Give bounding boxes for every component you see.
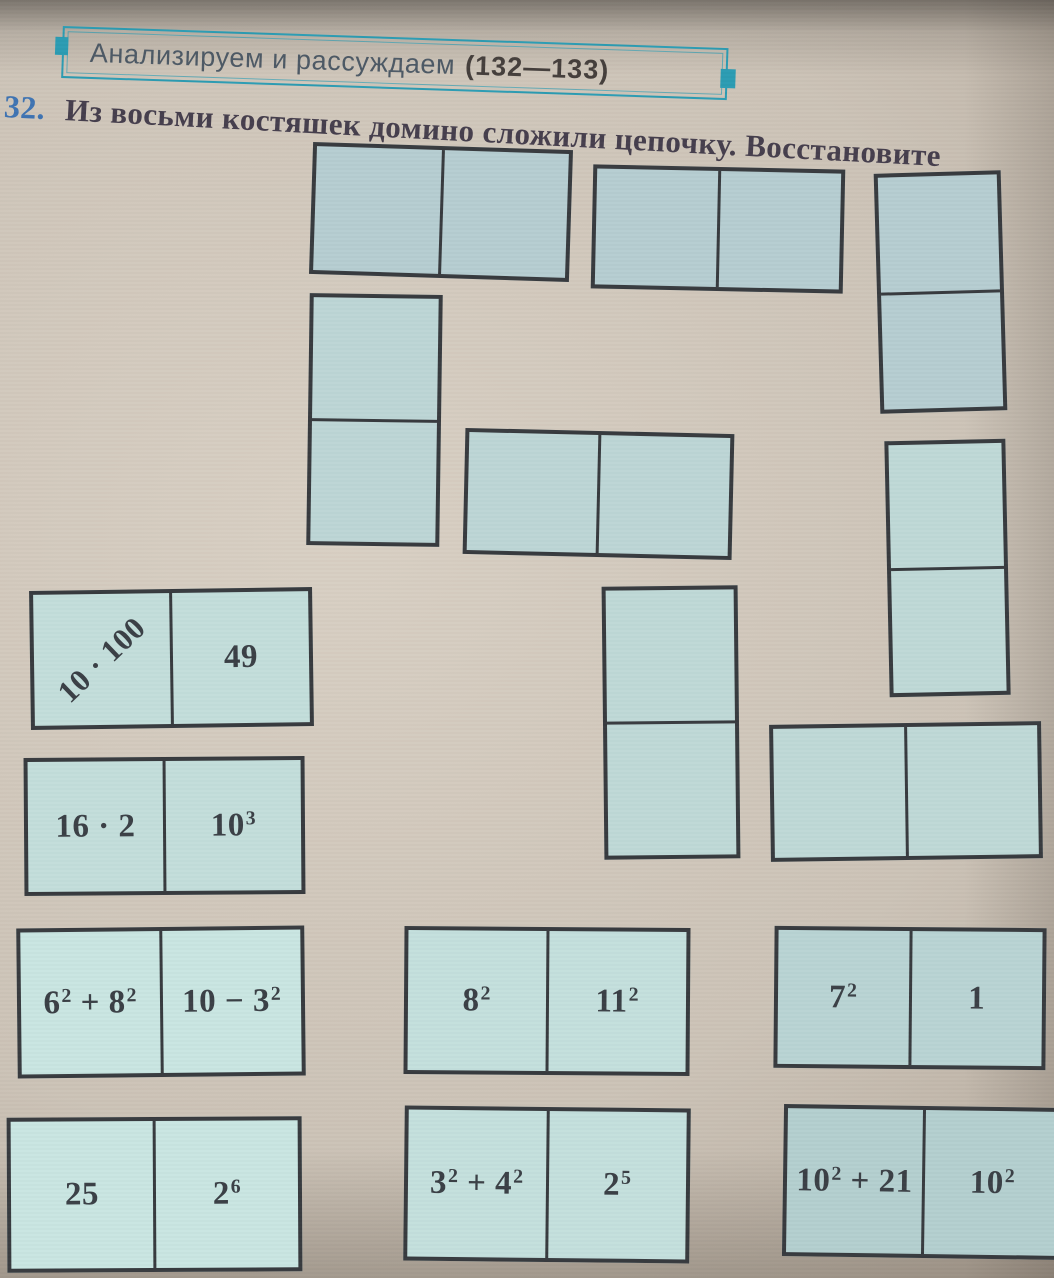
- filled-domino: 32 + 4225: [403, 1106, 691, 1264]
- empty-domino-cell: [718, 171, 841, 289]
- empty-domino-cell: [467, 432, 602, 553]
- domino-cell-right: 49: [172, 591, 310, 724]
- empty-domino-cell: [441, 150, 569, 278]
- domino-value: 25: [603, 1167, 632, 1204]
- domino-value: 103: [211, 807, 257, 844]
- empty-domino: [602, 585, 741, 859]
- empty-domino: [874, 170, 1008, 413]
- domino-cell-right: 25: [548, 1111, 687, 1259]
- filled-domino: 16 · 2103: [24, 756, 306, 896]
- empty-domino: [306, 293, 443, 547]
- domino-cell-left: 82: [408, 930, 549, 1071]
- domino-cell-right: 1: [911, 931, 1043, 1066]
- empty-domino-cell: [888, 443, 1004, 571]
- banner-label: Анализируем и рассуждаем: [63, 37, 455, 81]
- domino-cell-left: 10 · 100: [33, 593, 174, 726]
- domino-value: 49: [224, 639, 259, 676]
- domino-value: 16 · 2: [55, 808, 135, 846]
- empty-domino-cell: [312, 297, 439, 422]
- empty-domino-cell: [599, 435, 731, 556]
- domino-value: 26: [213, 1176, 242, 1213]
- domino-cell-right: 10 − 32: [162, 930, 302, 1073]
- empty-domino-cell: [606, 589, 735, 724]
- domino-cell-right: 26: [156, 1120, 299, 1268]
- domino-cell-left: 25: [11, 1121, 157, 1269]
- banner-end-square-icon: [720, 69, 736, 88]
- filled-domino: 102 + 21102: [782, 1104, 1054, 1260]
- domino-value: 1: [968, 980, 985, 1017]
- domino-cell-right: 102: [924, 1110, 1054, 1256]
- empty-domino-cell: [607, 723, 736, 855]
- empty-domino-cell: [891, 568, 1007, 693]
- domino-value: 25: [65, 1176, 99, 1213]
- domino-value: 82: [462, 982, 491, 1019]
- empty-domino: [884, 439, 1010, 697]
- empty-domino-cell: [310, 421, 437, 543]
- domino-value: 10 · 100: [51, 609, 153, 709]
- banner-page-range: (132—133): [465, 50, 610, 86]
- activity-banner: Анализируем и рассуждаем (132—133): [61, 26, 728, 100]
- empty-domino-cell: [907, 725, 1039, 856]
- task-number: 32.: [3, 88, 46, 126]
- domino-cell-right: 103: [166, 760, 302, 891]
- filled-domino: 10 · 10049: [29, 587, 314, 730]
- empty-domino-cell: [773, 727, 908, 858]
- domino-value: 112: [595, 983, 639, 1020]
- filled-domino: 721: [773, 926, 1046, 1070]
- domino-value: 10 − 32: [182, 982, 282, 1020]
- filled-domino: 82112: [403, 926, 690, 1076]
- domino-cell-left: 102 + 21: [786, 1108, 926, 1254]
- domino-value: 102 + 21: [796, 1162, 913, 1201]
- filled-domino: 2526: [7, 1116, 303, 1273]
- domino-cell-left: 16 · 2: [28, 761, 167, 892]
- domino-cell-left: 62 + 82: [20, 931, 163, 1074]
- filled-domino: 62 + 8210 − 32: [16, 925, 306, 1078]
- domino-cell-right: 112: [548, 931, 686, 1072]
- domino-cell-left: 72: [777, 930, 912, 1065]
- empty-domino: [769, 721, 1043, 862]
- empty-domino-cell: [313, 146, 444, 274]
- textbook-page: Анализируем и рассуждаем (132—133) 32.Из…: [0, 0, 1054, 1278]
- domino-cell-left: 32 + 42: [407, 1110, 549, 1258]
- empty-domino-cell: [878, 174, 1000, 295]
- domino-value: 102: [970, 1164, 1016, 1202]
- domino-value: 32 + 42: [430, 1165, 524, 1203]
- banner-end-square-icon: [55, 37, 69, 55]
- empty-domino: [309, 142, 573, 282]
- empty-domino-cell: [595, 168, 721, 287]
- empty-domino-cell: [881, 292, 1003, 410]
- empty-domino: [463, 428, 735, 560]
- domino-value: 72: [829, 979, 858, 1016]
- domino-value: 62 + 82: [43, 984, 137, 1022]
- empty-domino: [591, 164, 846, 293]
